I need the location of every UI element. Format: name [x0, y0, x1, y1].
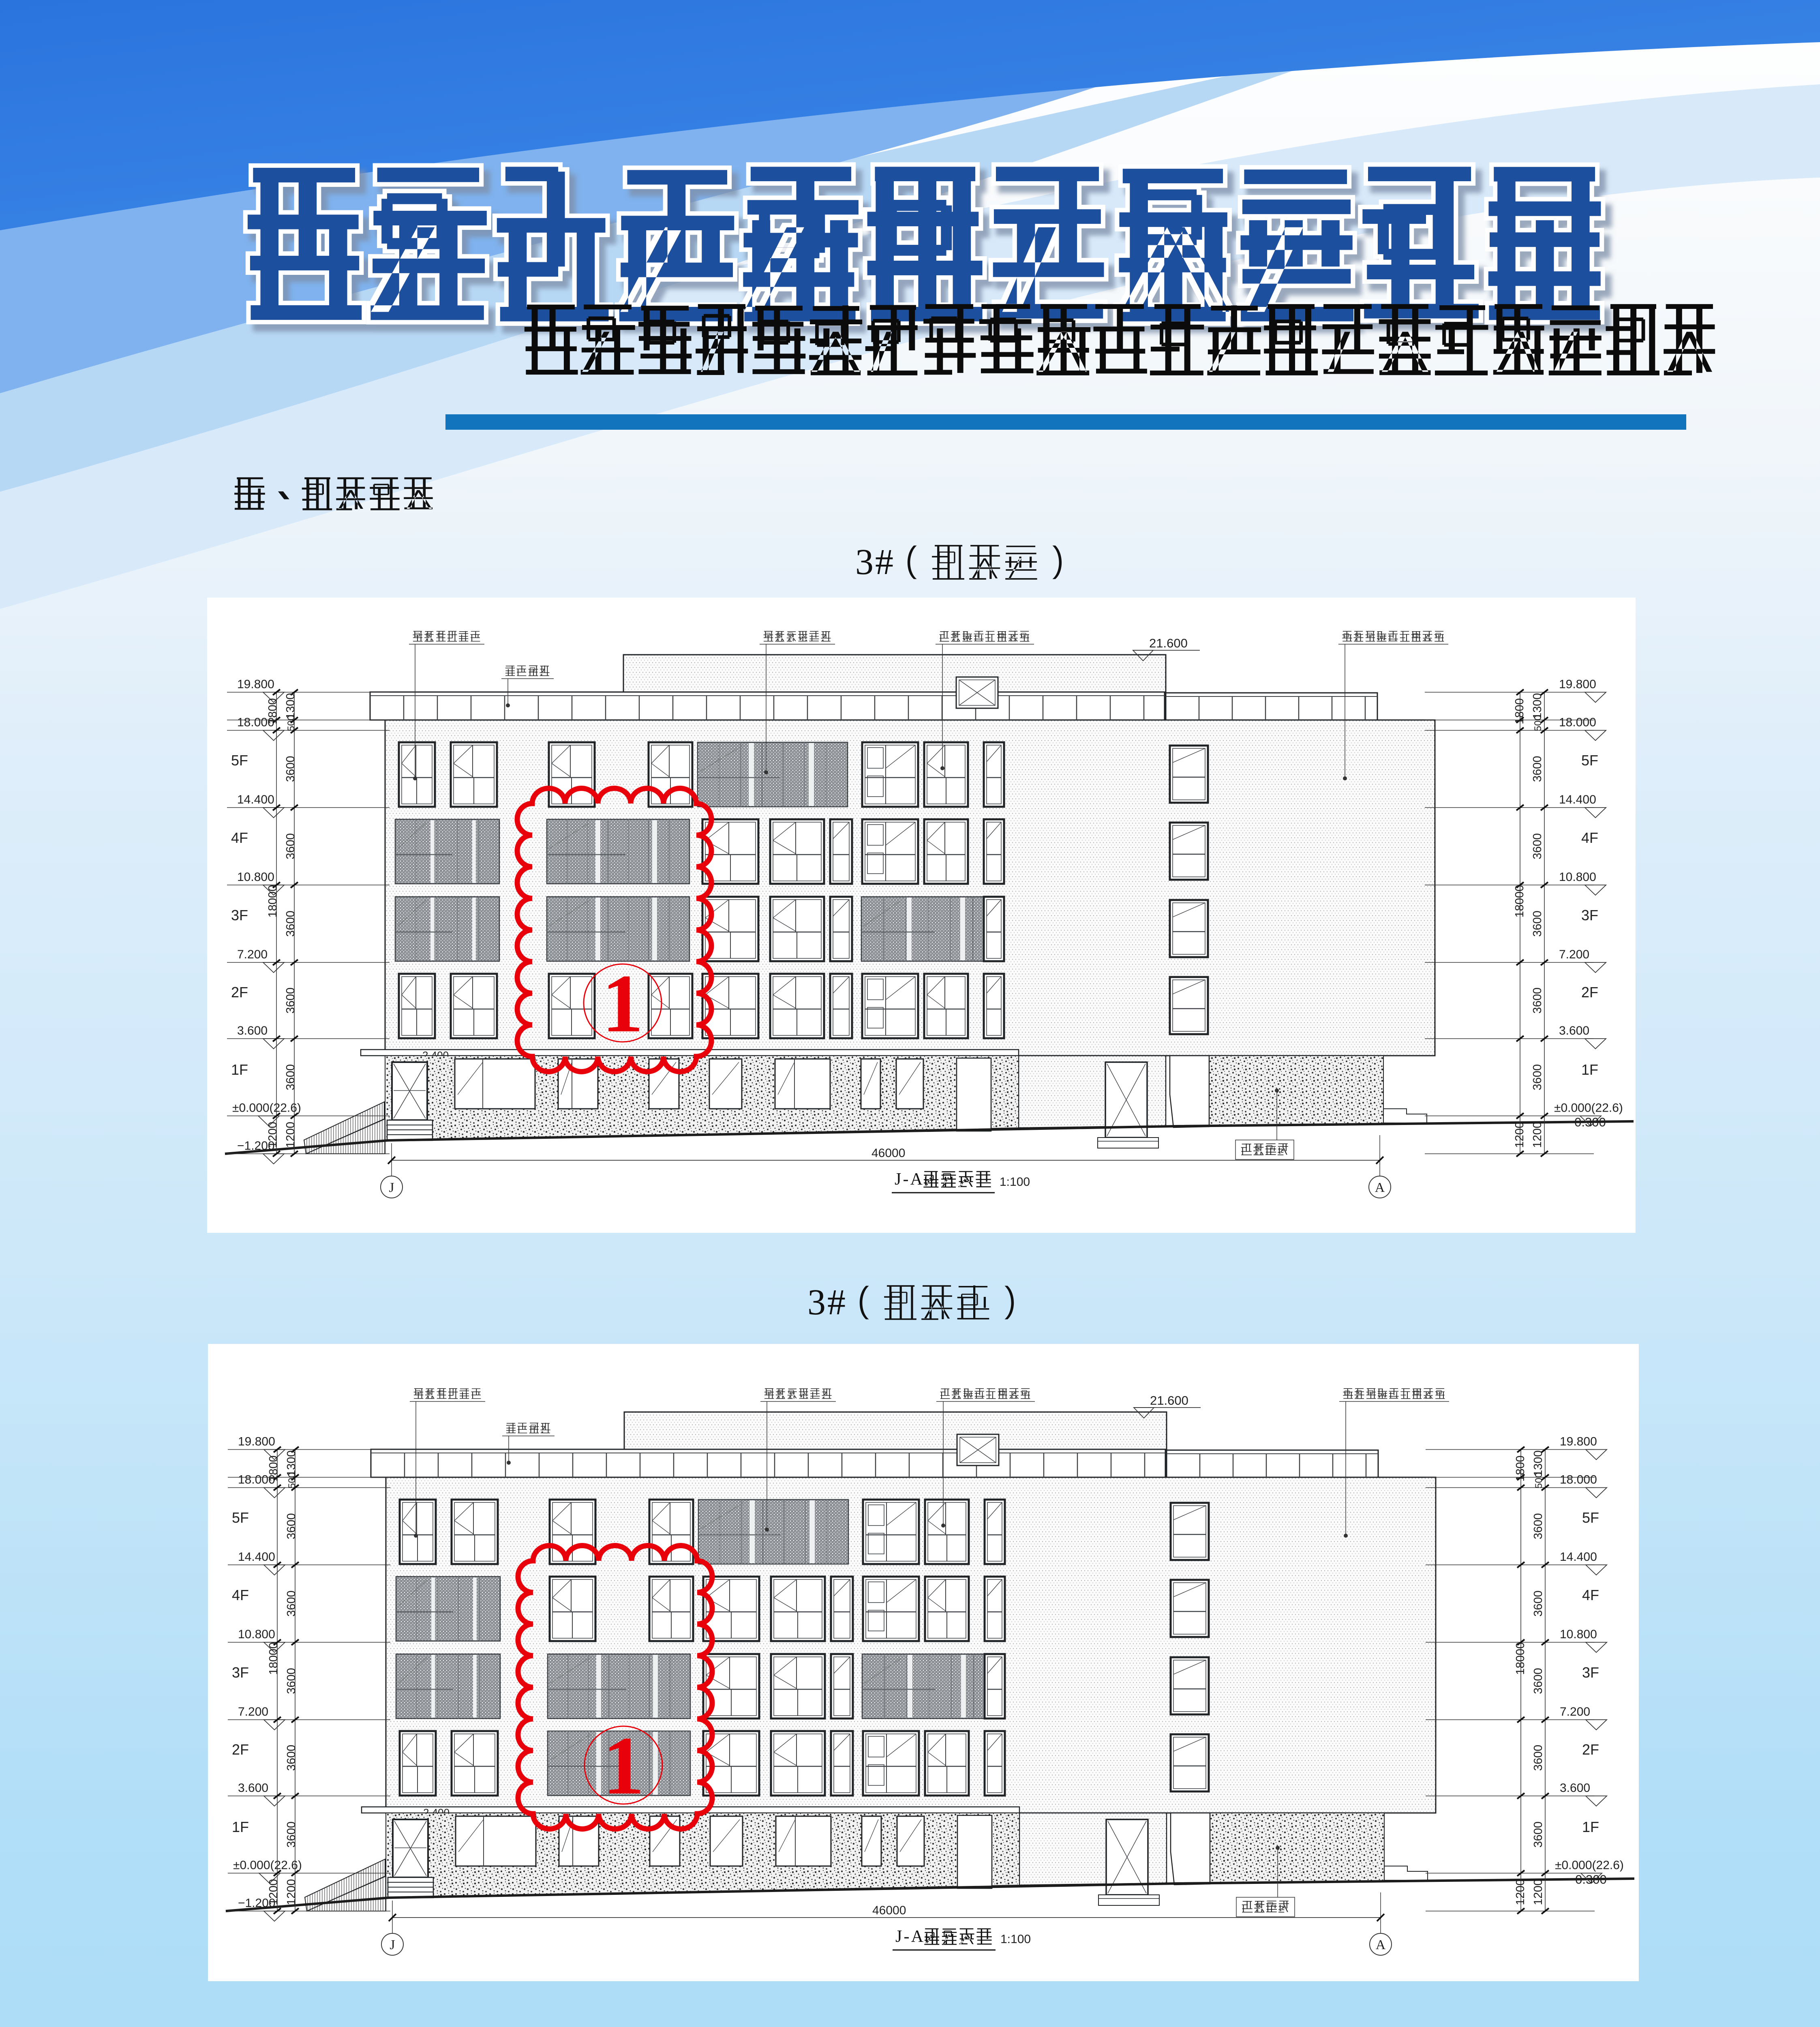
svg-text:1F: 1F: [1581, 1061, 1598, 1078]
svg-text:2F: 2F: [1582, 1741, 1599, 1758]
svg-text:3.600: 3.600: [1559, 1024, 1589, 1037]
svg-text:3600: 3600: [284, 833, 297, 859]
svg-text:3600: 3600: [1532, 1513, 1545, 1539]
svg-text:18.000: 18.000: [1560, 1473, 1597, 1487]
svg-text:3F: 3F: [231, 907, 248, 924]
svg-text:−0.300: −0.300: [1567, 1115, 1606, 1129]
svg-text:J: J: [389, 1180, 394, 1195]
svg-text:500: 500: [1533, 715, 1544, 731]
svg-text:3600: 3600: [1531, 1064, 1544, 1091]
svg-text:10.800: 10.800: [238, 1628, 275, 1641]
svg-text:3600: 3600: [1532, 1590, 1545, 1617]
svg-text:14.400: 14.400: [237, 793, 274, 806]
svg-text:J: J: [390, 1937, 395, 1952]
svg-text:19.800: 19.800: [1559, 678, 1596, 691]
svg-text:4F: 4F: [1581, 829, 1598, 846]
svg-text:21.600: 21.600: [1150, 1393, 1188, 1408]
svg-text:18.000: 18.000: [1559, 716, 1596, 729]
svg-text:3600: 3600: [1532, 1821, 1545, 1848]
svg-text:7.200: 7.200: [1559, 948, 1589, 961]
svg-text:1:100: 1:100: [1000, 1175, 1030, 1189]
svg-text:18000: 18000: [1514, 1642, 1527, 1675]
svg-text:3600: 3600: [1531, 756, 1544, 782]
svg-text:3600: 3600: [1531, 988, 1544, 1014]
svg-text:10.800: 10.800: [237, 870, 274, 884]
svg-text:1: 1: [603, 1720, 644, 1812]
svg-text:3F: 3F: [232, 1664, 249, 1681]
svg-text:3600: 3600: [285, 1513, 298, 1539]
svg-text:3600: 3600: [285, 1745, 298, 1771]
svg-text:±0.000(22.6): ±0.000(22.6): [1555, 1859, 1624, 1872]
svg-text:3600: 3600: [1531, 833, 1544, 859]
svg-text:1800: 1800: [1513, 698, 1526, 724]
svg-text:1:100: 1:100: [1000, 1933, 1031, 1946]
svg-text:500: 500: [286, 715, 297, 731]
svg-text:3.600: 3.600: [238, 1781, 268, 1795]
svg-text:14.400: 14.400: [238, 1550, 275, 1564]
svg-text:46000: 46000: [872, 1904, 906, 1917]
svg-text:3.600: 3.600: [237, 1024, 268, 1037]
svg-text:3600: 3600: [284, 911, 297, 937]
svg-text:1F: 1F: [1582, 1819, 1599, 1835]
svg-text:19.800: 19.800: [237, 678, 274, 691]
svg-text:3600: 3600: [285, 1821, 298, 1848]
svg-text:1F: 1F: [232, 1819, 249, 1835]
svg-text:10.800: 10.800: [1559, 870, 1596, 884]
svg-text:−0.300: −0.300: [1568, 1873, 1607, 1887]
svg-text:5F: 5F: [231, 752, 248, 769]
svg-text:1200: 1200: [1513, 1122, 1526, 1148]
svg-text:19.800: 19.800: [238, 1435, 275, 1448]
svg-text:7.200: 7.200: [237, 948, 268, 961]
svg-text:2F: 2F: [232, 1741, 249, 1758]
svg-text:1800: 1800: [267, 1455, 280, 1482]
svg-text:46000: 46000: [871, 1146, 905, 1160]
svg-text:4F: 4F: [1582, 1587, 1599, 1603]
svg-text:3F: 3F: [1581, 907, 1598, 924]
svg-text:3.600: 3.600: [1560, 1781, 1590, 1795]
svg-text:18000: 18000: [266, 885, 279, 918]
svg-text:1200: 1200: [1532, 1879, 1545, 1905]
svg-text:14.400: 14.400: [1560, 1550, 1597, 1564]
svg-text:18000: 18000: [1513, 885, 1526, 918]
svg-text:±0.000(22.6): ±0.000(22.6): [232, 1101, 301, 1115]
svg-text:±0.000(22.6): ±0.000(22.6): [1554, 1101, 1623, 1115]
svg-text:3600: 3600: [1532, 1668, 1545, 1694]
svg-text:2F: 2F: [231, 984, 248, 1001]
svg-text:3600: 3600: [284, 1064, 297, 1091]
svg-text:500: 500: [287, 1472, 298, 1489]
svg-text:3600: 3600: [1531, 911, 1544, 937]
svg-text:5F: 5F: [232, 1509, 249, 1526]
svg-text:A: A: [1376, 1937, 1386, 1952]
svg-text:3600: 3600: [285, 1668, 298, 1694]
svg-text:21.600: 21.600: [1149, 636, 1188, 650]
svg-text:7.200: 7.200: [238, 1705, 268, 1718]
svg-text:5F: 5F: [1581, 752, 1598, 769]
svg-text:5F: 5F: [1582, 1509, 1599, 1526]
svg-text:4F: 4F: [231, 829, 248, 846]
svg-text:1200: 1200: [1531, 1122, 1544, 1148]
svg-text:10.800: 10.800: [1560, 1628, 1597, 1641]
svg-text:19.800: 19.800: [1560, 1435, 1597, 1448]
svg-text:1200: 1200: [284, 1122, 297, 1148]
svg-text:1200: 1200: [285, 1879, 298, 1905]
svg-text:1200: 1200: [266, 1122, 279, 1148]
svg-text:4F: 4F: [232, 1587, 249, 1603]
svg-text:3600: 3600: [284, 988, 297, 1014]
svg-text:3600: 3600: [284, 756, 297, 782]
svg-text:7.200: 7.200: [1560, 1705, 1590, 1718]
svg-text:1800: 1800: [1514, 1455, 1527, 1482]
svg-text:2F: 2F: [1581, 984, 1598, 1001]
svg-text:500: 500: [1533, 1472, 1544, 1489]
svg-text:1: 1: [602, 958, 644, 1050]
svg-text:14.400: 14.400: [1559, 793, 1596, 806]
svg-text:±0.000(22.6): ±0.000(22.6): [233, 1859, 302, 1872]
svg-text:1200: 1200: [1514, 1879, 1527, 1905]
svg-text:1200: 1200: [267, 1879, 280, 1905]
svg-text:1F: 1F: [231, 1061, 248, 1078]
svg-text:3600: 3600: [1532, 1745, 1545, 1771]
svg-text:3600: 3600: [285, 1590, 298, 1617]
svg-text:18000: 18000: [267, 1642, 280, 1675]
svg-text:A: A: [1375, 1180, 1385, 1195]
svg-text:3F: 3F: [1582, 1664, 1599, 1681]
svg-text:1800: 1800: [266, 698, 279, 724]
